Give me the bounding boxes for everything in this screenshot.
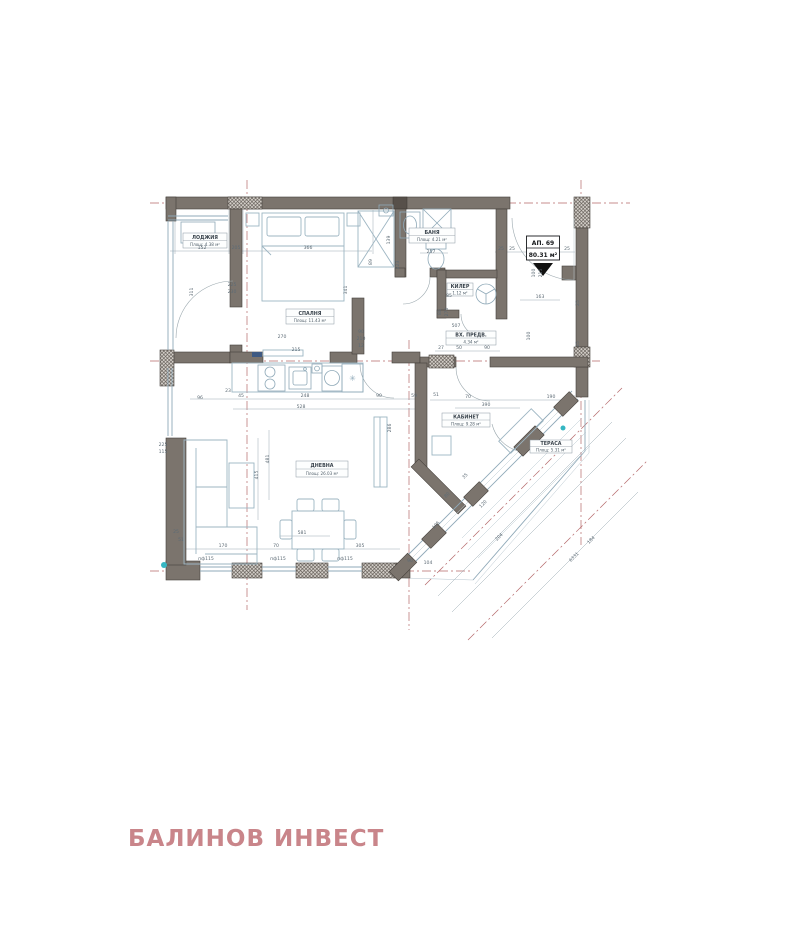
dimension-label: 481 — [265, 455, 271, 464]
dimension-label: 115 — [159, 449, 168, 455]
dimension-label: 257 — [427, 249, 436, 255]
dimension-label: 305 — [356, 543, 365, 549]
dimension-label: 23 — [225, 388, 231, 394]
dimension-label: 50 — [456, 345, 462, 351]
dimension-label: 581 — [298, 530, 307, 536]
svg-text:Площ: 5.31 м²: Площ: 5.31 м² — [536, 447, 566, 452]
dimension-label: 152 — [198, 245, 207, 251]
loggia-door-arc — [176, 281, 233, 338]
svg-text:ТЕРАСА: ТЕРАСА — [540, 441, 561, 447]
dimension-label: 6331 — [568, 551, 581, 564]
svg-text:ЛОДЖИЯ: ЛОДЖИЯ — [192, 235, 218, 241]
dimension-label: 104 — [424, 560, 433, 566]
dimension-label: 248 — [301, 393, 310, 399]
dimension-label: 215 — [538, 269, 544, 278]
kitchen-counter: ✳ — [232, 363, 363, 392]
dimension-label: 366 — [304, 245, 313, 251]
bed — [246, 213, 360, 301]
dimension-label: 90 — [358, 329, 364, 335]
dining-set — [280, 499, 356, 561]
dimension-label: 184 — [586, 535, 596, 545]
dimension-labels: 1522053662252303113418913922325727021590… — [159, 236, 597, 566]
room-label-living: ДНЕВНА Площ: 26.03 м² — [296, 461, 348, 477]
floor-plan-drawing: ✳ — [0, 0, 800, 936]
apartment-number: АП. 69 — [532, 240, 554, 247]
page: ✳ — [0, 0, 800, 936]
dimension-label: 163 — [536, 294, 545, 300]
dimension-label: пф115 — [337, 556, 353, 562]
dimension-label: 286 — [387, 424, 393, 433]
dimension-label: 223 — [395, 261, 401, 270]
apartment-area: 80.31 м² — [529, 252, 558, 259]
office-table — [432, 436, 451, 455]
dimension-label: 12 — [358, 343, 364, 349]
svg-text:4.34 м²: 4.34 м² — [463, 339, 479, 344]
room-label-bathroom: БАНЯ Площ: 4.21 м² — [409, 228, 455, 243]
dimension-label: 25 — [173, 529, 179, 535]
dimension-label: 507 — [452, 323, 461, 329]
dimension-label: 45 — [238, 393, 244, 399]
dimension-label: 89 — [368, 259, 374, 265]
svg-text:КИЛЕР: КИЛЕР — [451, 284, 470, 290]
dimension-label: 70 — [465, 394, 471, 400]
boiler — [476, 284, 496, 304]
dimension-label: 35 — [461, 472, 469, 480]
dimension-label: 225 — [159, 442, 168, 448]
dimension-label: 25 — [498, 246, 504, 252]
snowflake-icon: ✳ — [349, 374, 356, 383]
dimension-label: 390 — [482, 402, 491, 408]
living-door-arc — [360, 364, 394, 398]
dimension-label: 215 — [292, 347, 301, 353]
svg-text:ВХ. ПРЕДВ.: ВХ. ПРЕДВ. — [455, 333, 487, 339]
dimension-label: 225 — [228, 282, 237, 288]
teal-marker — [161, 562, 167, 568]
dimension-label: 204 — [494, 532, 504, 542]
dimension-label: 311 — [189, 288, 195, 297]
dimension-label: 25 — [575, 300, 581, 306]
dimension-label: 528 — [297, 404, 306, 410]
dimension-label: 100 — [526, 332, 532, 341]
dimension-label: 139 — [386, 236, 392, 245]
svg-text:1.12 м²: 1.12 м² — [452, 290, 468, 295]
dimension-label: 90 — [484, 345, 490, 351]
coffee-table — [229, 463, 254, 508]
svg-text:КАБИНЕТ: КАБИНЕТ — [453, 415, 480, 421]
teal-marker — [561, 426, 566, 431]
dimension-label: 88 — [437, 309, 443, 315]
room-label-entry-hall: ВХ. ПРЕДВ. 4.34 м² — [446, 331, 496, 345]
svg-text:ДНЕВНА: ДНЕВНА — [311, 463, 334, 469]
svg-text:Площ: 26.03 м²: Площ: 26.03 м² — [306, 471, 339, 476]
dimension-label: 27 — [438, 345, 444, 351]
svg-text:Площ: 9.28 м²: Площ: 9.28 м² — [451, 421, 481, 426]
dimension-label: 100 — [531, 269, 537, 278]
dimension-label: 51 — [433, 392, 439, 398]
office-door-arc — [456, 367, 490, 401]
dimension-label: 96 — [197, 395, 203, 401]
dimension-label: 70 — [273, 543, 279, 549]
dimension-label: пф115 — [270, 556, 286, 562]
dimension-label: 270 — [444, 308, 450, 317]
brand-name: БАЛИНОВ ИНВЕСТ — [128, 826, 384, 852]
dimension-label: 51 — [178, 537, 184, 543]
dimension-label: 25 — [564, 246, 570, 252]
dimension-label: 25 — [575, 341, 581, 347]
dimension-label: пф115 — [198, 556, 214, 562]
room-label-terrace: ТЕРАСА Площ: 5.31 м² — [530, 440, 572, 453]
bathroom-door-arc — [403, 277, 430, 304]
dimension-label: 341 — [343, 286, 349, 295]
tv-unit — [374, 417, 387, 487]
windows-layer — [168, 216, 362, 571]
room-label-office: КАБИНЕТ Площ: 9.28 м² — [442, 413, 490, 427]
svg-text:СПАЛНЯ: СПАЛНЯ — [299, 311, 322, 317]
dimension-label: 415 — [254, 471, 260, 480]
dimension-label: 230 — [228, 289, 237, 295]
dimension-label: 270 — [278, 334, 287, 340]
room-label-bedroom: СПАЛНЯ Площ: 11.43 м² — [286, 309, 334, 324]
dimension-label: 90 — [376, 393, 382, 399]
dimension-label: 170 — [219, 543, 228, 549]
dimension-label: 25 — [509, 246, 515, 252]
svg-text:БАНЯ: БАНЯ — [424, 230, 439, 236]
dimension-label: 190 — [547, 394, 556, 400]
svg-text:Площ: 4.21 м²: Площ: 4.21 м² — [417, 237, 447, 242]
dimension-label: 59 — [411, 393, 417, 399]
svg-text:Площ: 11.43 м²: Площ: 11.43 м² — [294, 318, 327, 323]
dimension-label: 210 — [357, 336, 366, 342]
dimension-label: 205 — [232, 245, 241, 251]
dimension-label: 120 — [478, 499, 488, 509]
dimension-label: 85 — [446, 293, 452, 299]
dimension-label: 90 — [407, 558, 413, 564]
